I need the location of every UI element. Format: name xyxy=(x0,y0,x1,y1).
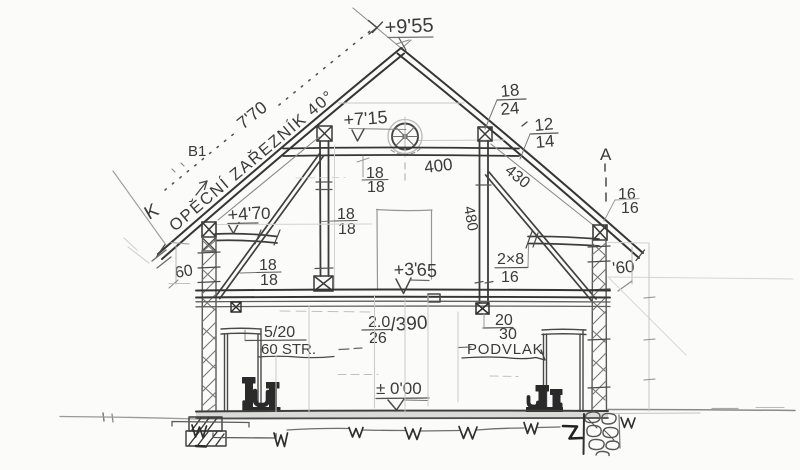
svg-text:60: 60 xyxy=(174,262,195,282)
svg-text:14: 14 xyxy=(535,131,556,152)
svg-text:400: 400 xyxy=(423,155,453,177)
svg-text:0: 0 xyxy=(261,204,270,223)
svg-text:+4'7: +4'7 xyxy=(227,203,262,225)
svg-text:26: 26 xyxy=(369,330,387,347)
svg-text:6: 6 xyxy=(416,259,427,279)
svg-text:+3': +3' xyxy=(393,259,418,280)
svg-text:18: 18 xyxy=(338,221,356,238)
svg-text:+7'15: +7'15 xyxy=(343,107,388,130)
svg-text:5/20: 5/20 xyxy=(264,324,295,341)
svg-text:16: 16 xyxy=(621,200,639,217)
svg-text:± 0'00: ± 0'00 xyxy=(376,379,422,398)
svg-text:+9'55: +9'55 xyxy=(384,14,434,39)
svg-text:2×8: 2×8 xyxy=(497,251,524,268)
svg-text:1: 1 xyxy=(260,272,269,289)
svg-text:18: 18 xyxy=(367,179,385,196)
svg-text:24: 24 xyxy=(500,98,521,119)
svg-text:8: 8 xyxy=(269,272,278,289)
svg-text:B1: B1 xyxy=(188,143,206,160)
svg-text:PODVLAK: PODVLAK xyxy=(467,341,543,358)
svg-text:60 STR.: 60 STR. xyxy=(261,341,316,358)
svg-text:5: 5 xyxy=(427,261,437,281)
svg-text:16: 16 xyxy=(501,269,519,286)
svg-text:A: A xyxy=(600,145,612,164)
svg-text:/390: /390 xyxy=(390,312,428,336)
svg-text:2.0: 2.0 xyxy=(368,314,390,331)
